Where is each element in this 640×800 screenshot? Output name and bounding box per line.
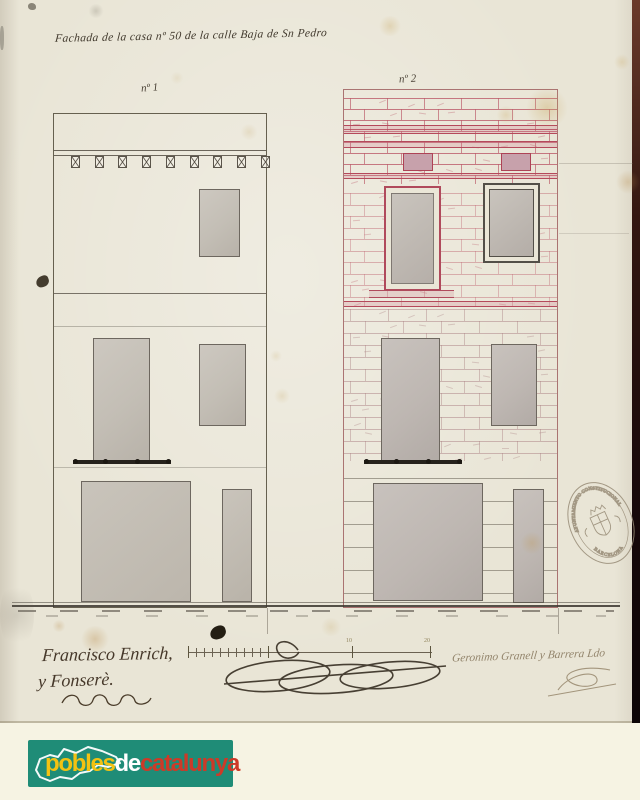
- corbel-block: [118, 156, 127, 168]
- masonry-joint: [461, 262, 462, 274]
- masonry-joint: [540, 429, 541, 441]
- masonry-texture-mark: [351, 399, 358, 402]
- masonry-joint: [498, 285, 499, 297]
- masonry-texture-mark: [483, 159, 490, 162]
- masonry-course-line: [344, 453, 557, 454]
- ground-hatching: [46, 615, 606, 617]
- paper-stain: [0, 580, 34, 650]
- paper-stain: [88, 4, 104, 18]
- masonry-texture-mark: [446, 169, 453, 172]
- masonry-joint: [364, 251, 365, 263]
- masonry-course-line: [344, 309, 557, 310]
- masonry-texture-mark: [446, 267, 453, 270]
- corbel-block: [213, 156, 222, 168]
- masonry-joint: [350, 193, 351, 205]
- ink-blot: [35, 274, 51, 289]
- masonry-course-line: [344, 333, 557, 334]
- masonry-joint: [438, 109, 439, 120]
- floor-band: [344, 301, 557, 307]
- masonry-joint: [387, 98, 388, 109]
- masonry-joint: [350, 429, 351, 441]
- paper-stain: [614, 54, 630, 70]
- masonry-joint: [475, 251, 476, 263]
- paper-edge: [0, 721, 632, 723]
- masonry-joint: [464, 429, 465, 441]
- corbel-x-mark: [238, 157, 245, 167]
- masonry-joint: [540, 453, 541, 461]
- masonry-joint: [441, 393, 442, 405]
- masonry-joint: [549, 109, 550, 120]
- masonry-texture-mark: [362, 408, 369, 410]
- masonry-texture-mark: [365, 432, 372, 434]
- masonry-course-line: [344, 441, 557, 442]
- masonry-course-line: [344, 285, 557, 286]
- corbel-x-mark: [191, 157, 198, 167]
- masonry-joint: [502, 429, 503, 441]
- masonry-texture-mark: [538, 349, 545, 351]
- masonry-joint: [350, 98, 351, 109]
- masonry-texture-mark: [446, 386, 453, 389]
- masonry-texture-mark: [541, 255, 548, 257]
- masonry-texture-mark: [419, 324, 426, 326]
- paper-stain: [270, 350, 282, 362]
- masonry-texture-mark: [364, 233, 371, 235]
- masonry-texture-mark: [502, 448, 509, 449]
- masonry-joint: [403, 321, 404, 333]
- facade-2-balcony-rail: [364, 460, 462, 464]
- facade-1-middle-window: [199, 344, 246, 426]
- ground-hatching: [18, 610, 614, 612]
- masonry-course-line: [344, 478, 557, 479]
- masonry-texture-mark: [448, 207, 455, 209]
- paper-stain: [320, 618, 342, 636]
- floor-line-faint: [54, 326, 266, 327]
- masonry-joint: [350, 239, 351, 251]
- masonry-joint: [475, 228, 476, 240]
- masonry-joint: [441, 369, 442, 381]
- corbel-block: [166, 156, 175, 168]
- masonry-texture-mark: [475, 168, 482, 171]
- masonry-texture-mark: [390, 325, 397, 328]
- masonry-texture-mark: [393, 136, 400, 138]
- masonry-joint: [549, 274, 550, 286]
- signature-right-flourish: [540, 664, 622, 700]
- cornice-band: [344, 125, 557, 134]
- masonry-joint: [364, 274, 365, 286]
- masonry-joint: [464, 405, 465, 417]
- signature-left-flourish: [58, 691, 154, 709]
- masonry-course-line: [344, 98, 557, 99]
- cornice-band: [344, 141, 557, 148]
- masonry-texture-mark: [484, 457, 491, 460]
- cornice-line: [54, 150, 266, 151]
- signature-left-line1: Francisco Enrich,: [41, 643, 173, 666]
- masonry-joint: [365, 393, 366, 405]
- masonry-joint: [350, 357, 351, 369]
- facade-1-balcony-door: [93, 338, 150, 461]
- ink-flourish: [220, 636, 450, 700]
- masonry-texture-mark: [354, 423, 361, 426]
- signature-right: Geronimo Granell y Barrera Ldo: [451, 647, 605, 664]
- corbel-block: [142, 156, 151, 168]
- facade-2-upper-balcony-window: [384, 186, 441, 291]
- masonry-joint: [364, 205, 365, 217]
- masonry-joint: [441, 441, 442, 453]
- masonry-joint: [540, 333, 541, 345]
- scanned-paper: Fachada de la casa nº 50 de la calle Baj…: [0, 0, 640, 723]
- masonry-course-line: [344, 274, 557, 275]
- facade-1-balcony-rail: [73, 460, 171, 464]
- masonry-texture-mark: [353, 337, 360, 338]
- stamp-coat-of-arms: [577, 500, 623, 543]
- masonry-texture-mark: [448, 112, 455, 114]
- corbel-x-mark: [262, 157, 269, 167]
- facade-1-shop-opening: [81, 481, 191, 602]
- masonry-joint: [549, 205, 550, 217]
- masonry-joint: [498, 98, 499, 109]
- facade-1-entry-door: [222, 489, 252, 602]
- masonry-texture-mark: [351, 279, 358, 282]
- masonry-joint: [549, 228, 550, 240]
- corbel-x-mark: [96, 157, 103, 167]
- attic-vent: [501, 153, 531, 171]
- masonry-joint: [502, 309, 503, 321]
- masonry-joint: [350, 405, 351, 417]
- masonry-joint: [475, 205, 476, 217]
- masonry-joint: [464, 309, 465, 321]
- masonry-joint: [401, 109, 402, 120]
- masonry-joint: [464, 357, 465, 369]
- facade-2-entry-door: [513, 489, 544, 603]
- masonry-texture-mark: [364, 351, 371, 353]
- attic-vent: [403, 153, 433, 171]
- masonry-joint: [426, 309, 427, 321]
- masonry-joint: [365, 369, 366, 381]
- masonry-texture-mark: [380, 180, 387, 182]
- corbel-block: [71, 156, 80, 168]
- corbel-x-mark: [72, 157, 79, 167]
- masonry-joint: [464, 453, 465, 461]
- masonry-course-line: [344, 120, 557, 121]
- masonry-texture-mark: [539, 432, 546, 434]
- scan-dark-edge: [632, 0, 640, 723]
- masonry-joint: [364, 153, 365, 164]
- masonry-joint: [540, 357, 541, 369]
- masonry-joint: [475, 274, 476, 286]
- facade-2-label: nº 2: [399, 73, 417, 86]
- facade-2-middle-window: [491, 344, 537, 426]
- masonry-joint: [350, 453, 351, 461]
- masonry-joint: [479, 321, 480, 333]
- masonry-texture-mark: [353, 220, 360, 221]
- corbel-block: [190, 156, 199, 168]
- logo-wordmark: poblesdecatalunya: [45, 750, 239, 778]
- masonry-joint: [498, 262, 499, 274]
- logo-word-pobles: pobles: [45, 750, 115, 777]
- masonry-joint: [475, 153, 476, 164]
- paper-stain: [274, 388, 290, 404]
- corbel-block: [95, 156, 104, 168]
- masonry-joint: [388, 309, 389, 321]
- masonry-texture-mark: [483, 375, 490, 378]
- masonry-texture-mark: [541, 158, 548, 160]
- corbel-block: [261, 156, 270, 168]
- masonry-joint: [350, 285, 351, 297]
- masonry-joint: [479, 417, 480, 429]
- masonry-joint: [350, 381, 351, 393]
- masonry-joint: [517, 441, 518, 453]
- masonry-texture-mark: [472, 362, 479, 364]
- corbel-x-mark: [119, 157, 126, 167]
- masonry-joint: [350, 216, 351, 228]
- masonry-joint: [502, 453, 503, 461]
- masonry-joint: [535, 98, 536, 109]
- facade-1-label: nº 1: [141, 81, 159, 94]
- corbel-x-mark: [214, 157, 221, 167]
- masonry-joint: [461, 285, 462, 297]
- masonry-texture-mark: [364, 137, 371, 139]
- masonry-course-line: [344, 109, 557, 110]
- masonry-joint: [461, 216, 462, 228]
- masonry-joint: [424, 98, 425, 109]
- masonry-texture-mark: [538, 135, 545, 137]
- masonry-texture-mark: [513, 456, 520, 459]
- edge-mark: [28, 3, 36, 10]
- drawing-title: Fachada de la casa nº 50 de la calle Baj…: [55, 27, 328, 45]
- paper-stain: [378, 16, 402, 36]
- masonry-joint: [512, 274, 513, 286]
- masonry-joint: [441, 345, 442, 357]
- masonry-joint: [535, 262, 536, 274]
- masonry-joint: [540, 405, 541, 417]
- masonry-joint: [438, 153, 439, 164]
- masonry-joint: [517, 321, 518, 333]
- masonry-texture-mark: [379, 100, 386, 104]
- masonry-texture-mark: [444, 444, 451, 448]
- guide-line: [559, 163, 633, 164]
- masonry-joint: [512, 109, 513, 120]
- cornice-band: [344, 173, 557, 179]
- facade-2-window-sill: [369, 290, 454, 298]
- masonry-joint: [535, 285, 536, 297]
- guide-line: [559, 233, 629, 234]
- pobles-de-catalunya-watermark: poblesdecatalunya: [28, 740, 233, 787]
- masonry-joint: [365, 441, 366, 453]
- masonry-texture-mark: [510, 432, 517, 434]
- masonry-texture-mark: [408, 315, 415, 319]
- corbel-row: [71, 156, 271, 169]
- masonry-joint: [549, 153, 550, 164]
- logo-word-catalunya: catalunya: [140, 750, 239, 777]
- masonry-texture-mark: [437, 314, 444, 318]
- masonry-texture-mark: [437, 103, 444, 107]
- signature-left-line2: y Fonserè.: [38, 669, 115, 693]
- facade-1-elevation: [53, 113, 267, 608]
- masonry-joint: [350, 262, 351, 274]
- masonry-joint: [540, 309, 541, 321]
- facade-2-upper-window: [483, 183, 540, 263]
- corbel-block: [237, 156, 246, 168]
- masonry-joint: [461, 193, 462, 205]
- facade-2-shop-opening: [373, 483, 483, 601]
- masonry-texture-mark: [408, 104, 415, 108]
- masonry-joint: [461, 239, 462, 251]
- masonry-course-line: [344, 429, 557, 430]
- facade-2-elevation: [343, 89, 558, 608]
- masonry-joint: [479, 369, 480, 381]
- masonry-joint: [549, 251, 550, 263]
- masonry-joint: [479, 393, 480, 405]
- masonry-texture-mark: [448, 324, 455, 326]
- masonry-course-line: [344, 321, 557, 322]
- paper-stain: [52, 620, 66, 632]
- masonry-texture-mark: [527, 336, 534, 338]
- ground-line: [12, 605, 620, 607]
- facade-1-attic-window: [199, 189, 240, 257]
- logo-word-de: de: [115, 750, 140, 777]
- facade-2-balcony-door: [381, 338, 440, 461]
- paper-stain: [170, 72, 184, 84]
- masonry-joint: [540, 381, 541, 393]
- masonry-joint: [365, 321, 366, 333]
- barcelona-municipal-stamp: AYUNTAMIENTO CONSTITUCIONAL BARCELONA: [558, 476, 640, 570]
- masonry-texture-mark: [379, 311, 386, 315]
- corbel-x-mark: [143, 157, 150, 167]
- masonry-joint: [475, 109, 476, 120]
- masonry-joint: [479, 345, 480, 357]
- floor-line-faint: [54, 467, 266, 468]
- masonry-joint: [350, 333, 351, 345]
- masonry-joint: [441, 321, 442, 333]
- masonry-joint: [464, 333, 465, 345]
- masonry-texture-mark: [419, 112, 426, 114]
- corbel-x-mark: [167, 157, 174, 167]
- masonry-joint: [364, 109, 365, 120]
- masonry-texture-mark: [362, 288, 369, 290]
- masonry-joint: [461, 98, 462, 109]
- ground-line: [12, 602, 620, 603]
- edge-mark: [0, 26, 4, 50]
- masonry-texture-mark: [475, 266, 482, 269]
- floor-line: [54, 293, 266, 294]
- masonry-joint: [441, 417, 442, 429]
- masonry-texture-mark: [541, 374, 548, 376]
- masonry-joint: [365, 417, 366, 429]
- masonry-joint: [350, 309, 351, 321]
- masonry-texture-mark: [472, 244, 479, 246]
- masonry-texture-mark: [475, 385, 482, 388]
- masonry-texture-mark: [390, 113, 397, 116]
- masonry-joint: [464, 381, 465, 393]
- scale-tick: [188, 646, 189, 658]
- masonry-texture-mark: [409, 180, 416, 182]
